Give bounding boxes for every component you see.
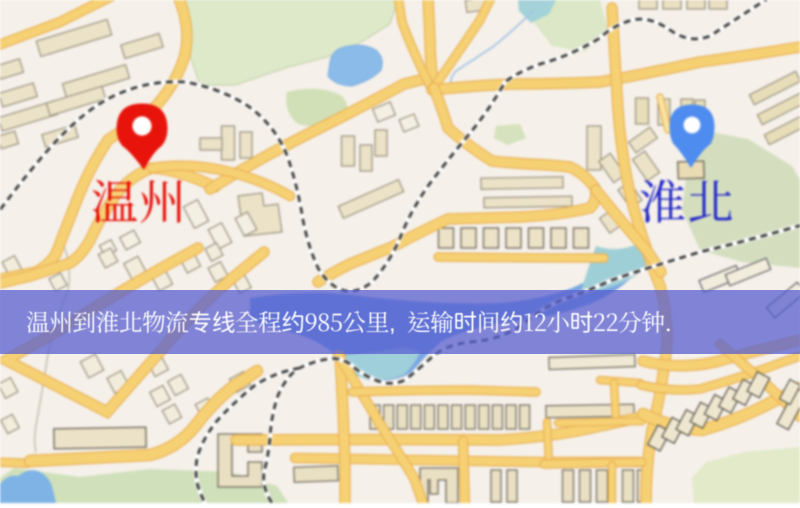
svg-text:温州: 温州 [91,166,187,233]
svg-text:淮北: 淮北 [639,166,735,233]
